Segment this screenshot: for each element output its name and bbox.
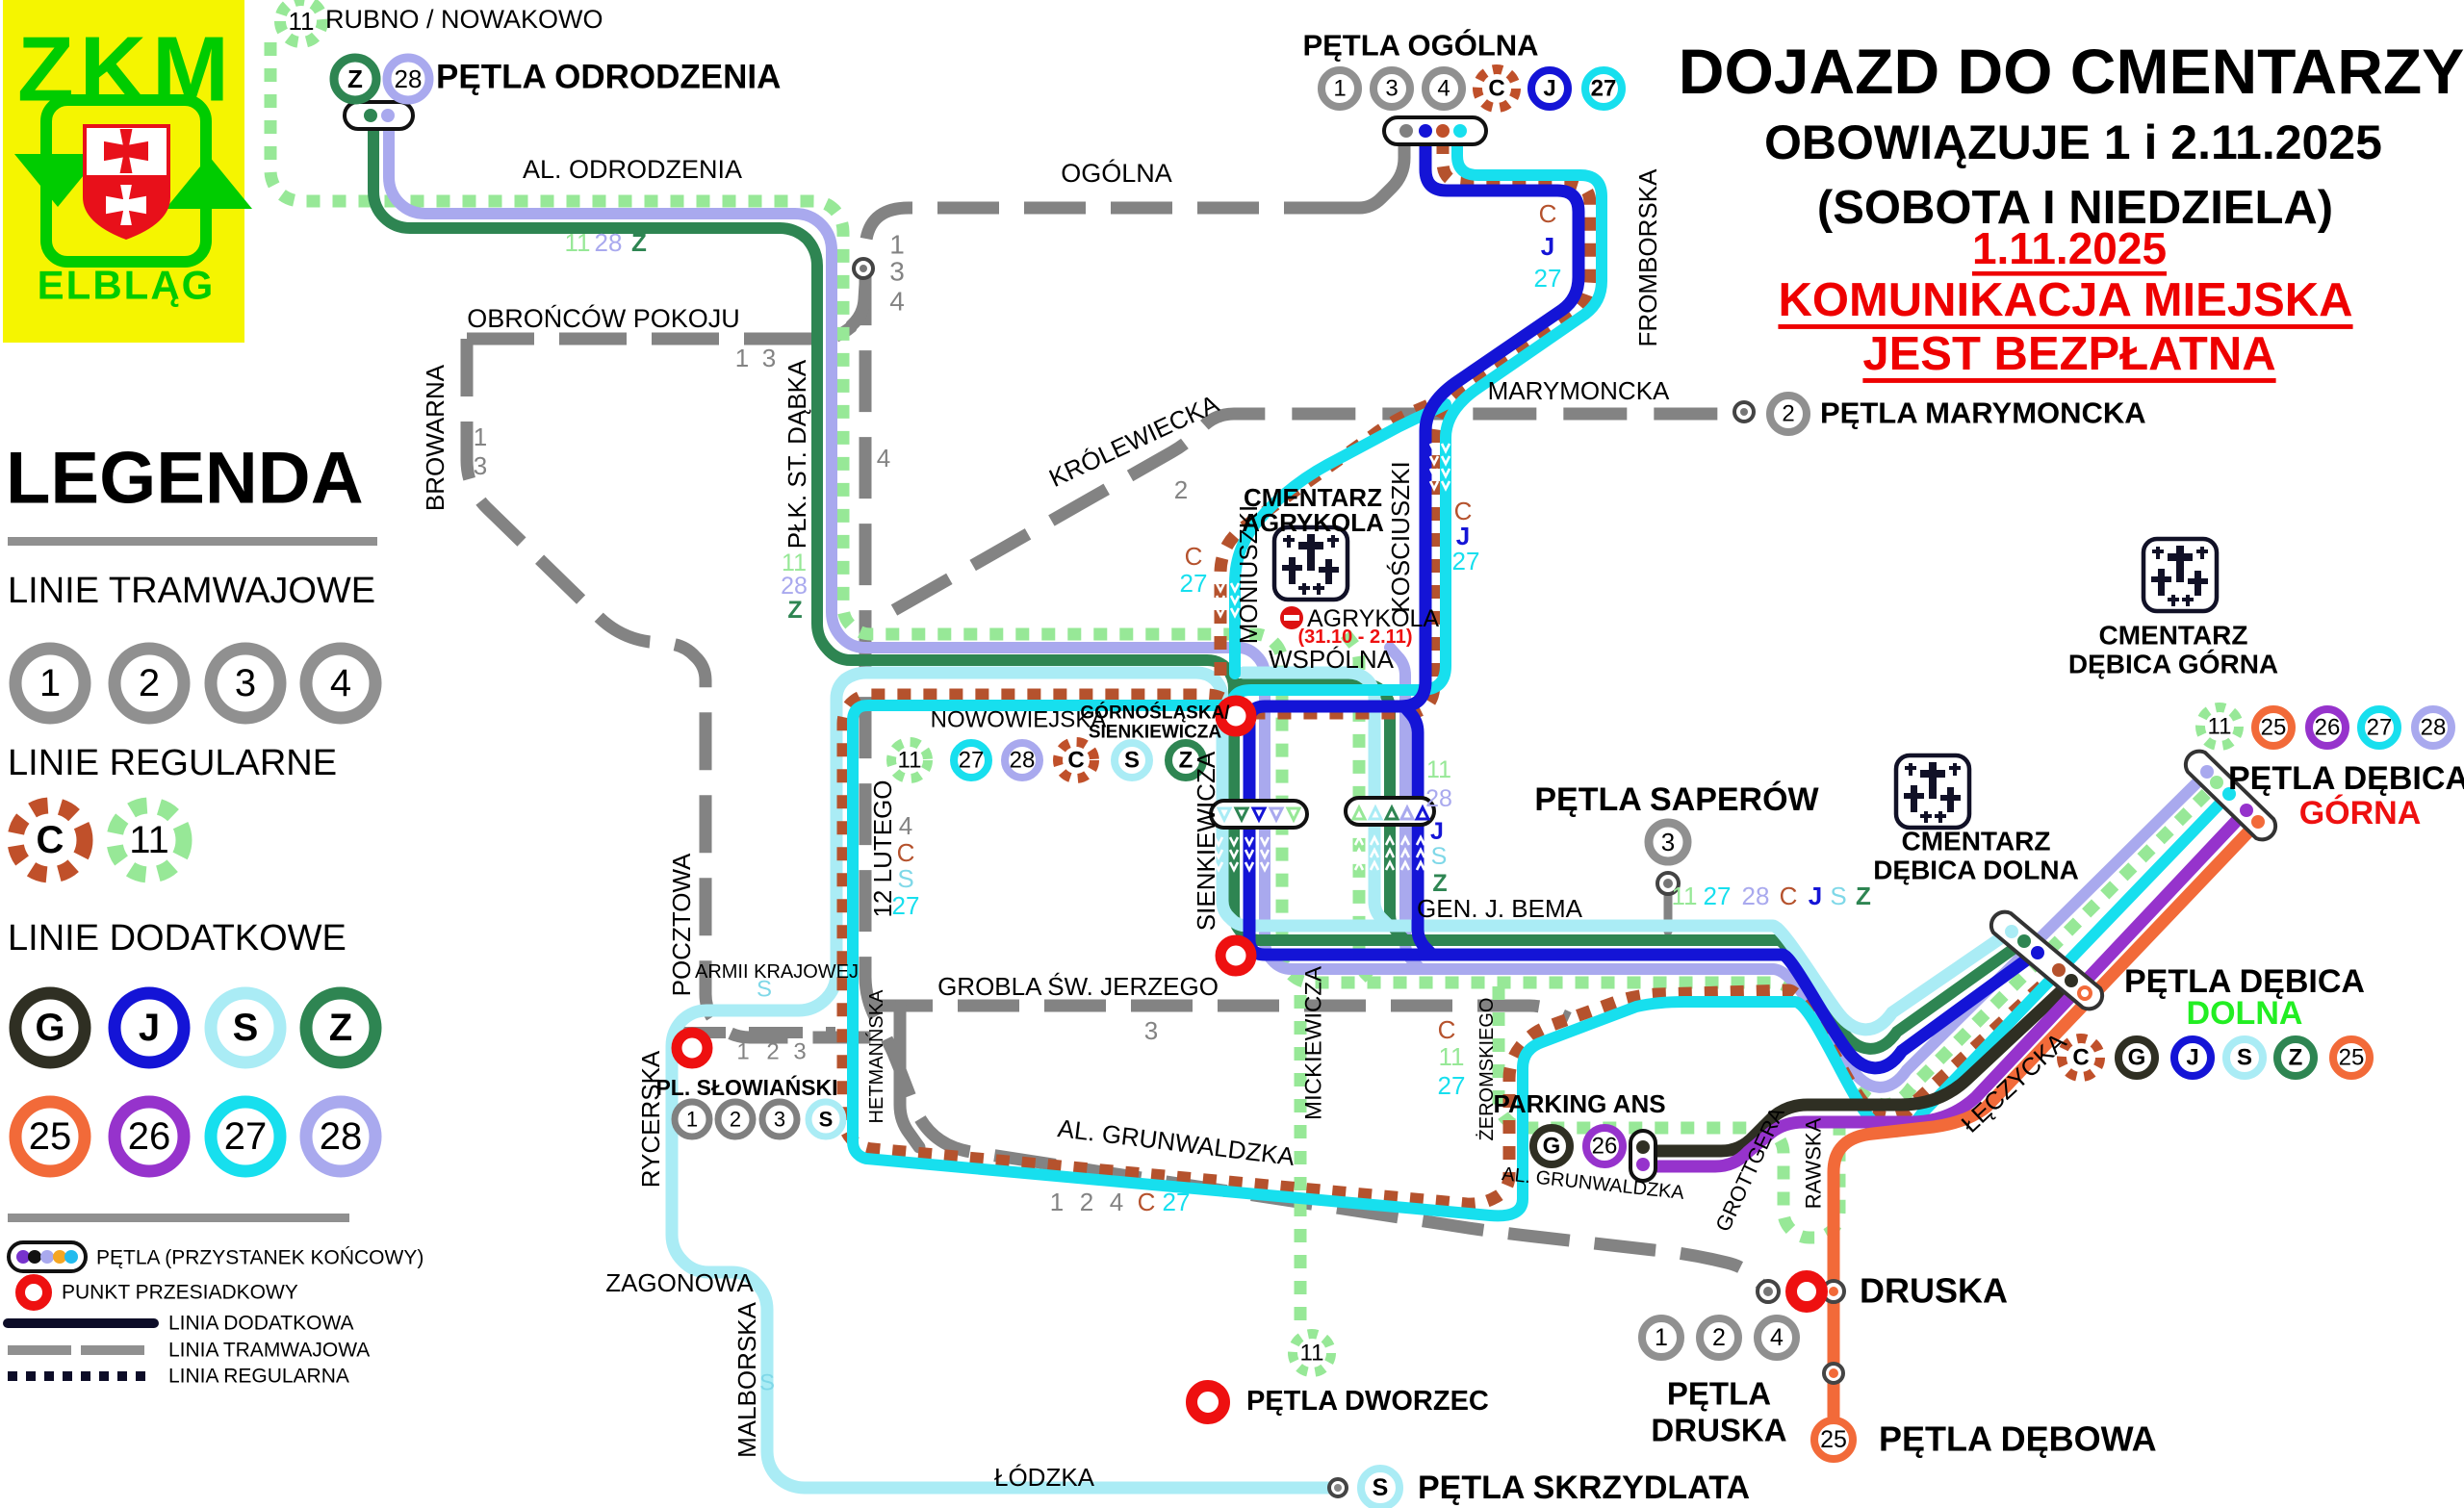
svg-text:PĘTLA SKRZYDLATA: PĘTLA SKRZYDLATA: [1418, 1470, 1750, 1506]
svg-text:PARKING ANS: PARKING ANS: [1493, 1089, 1665, 1118]
svg-text:C: C: [1067, 748, 1084, 774]
svg-text:C: C: [1185, 542, 1203, 571]
svg-text:1: 1: [1333, 76, 1346, 102]
svg-text:C: C: [1438, 1015, 1456, 1044]
svg-text:S: S: [1830, 882, 1846, 910]
svg-text:PĘTLA OGÓLNA: PĘTLA OGÓLNA: [1302, 28, 1538, 63]
svg-text:GROBLA ŚW. JERZEGO: GROBLA ŚW. JERZEGO: [937, 972, 1219, 1001]
svg-text:27: 27: [2367, 715, 2393, 741]
svg-text:2: 2: [1712, 1324, 1726, 1351]
svg-text:Z: Z: [347, 64, 363, 93]
svg-text:27: 27: [224, 1115, 268, 1158]
svg-text:ŻEROMSKIEGO: ŻEROMSKIEGO: [1476, 998, 1498, 1141]
svg-text:S: S: [759, 1370, 775, 1396]
svg-text:3: 3: [1385, 76, 1398, 102]
svg-text:27: 27: [1704, 882, 1732, 910]
svg-text:GÓRNA: GÓRNA: [2299, 795, 2422, 831]
svg-text:28: 28: [395, 64, 423, 93]
svg-text:CMENTARZ: CMENTARZ: [1901, 827, 2050, 856]
svg-text:11: 11: [1672, 882, 1698, 910]
svg-text:2: 2: [730, 1108, 741, 1132]
svg-text:DOLNA: DOLNA: [2187, 995, 2303, 1032]
svg-text:1: 1: [736, 1039, 749, 1065]
svg-text:KOMUNIKACJA MIEJSKA: KOMUNIKACJA MIEJSKA: [1778, 274, 2352, 326]
svg-text:26: 26: [1592, 1134, 1618, 1160]
svg-text:LINIE TRAMWAJOWE: LINIE TRAMWAJOWE: [8, 571, 375, 611]
svg-text:25: 25: [29, 1115, 72, 1158]
svg-text:2: 2: [766, 1039, 779, 1065]
svg-text:HETMANŃSKA: HETMANŃSKA: [865, 989, 887, 1124]
svg-text:G: G: [1543, 1134, 1561, 1160]
svg-text:RUBNO / NOWAKOWO: RUBNO / NOWAKOWO: [325, 5, 603, 34]
svg-text:JEST BEZPŁATNA: JEST BEZPŁATNA: [1862, 328, 2275, 380]
svg-text:C: C: [897, 838, 915, 867]
svg-text:28: 28: [320, 1115, 363, 1158]
svg-text:PĘTLA SAPERÓW: PĘTLA SAPERÓW: [1534, 781, 1819, 818]
svg-text:C: C: [37, 819, 64, 861]
svg-text:11: 11: [2208, 714, 2232, 740]
svg-text:S: S: [1373, 1474, 1389, 1501]
svg-text:OBROŃCÓW POKOJU: OBROŃCÓW POKOJU: [467, 303, 740, 333]
svg-text:PUNKT PRZESIADKOWY: PUNKT PRZESIADKOWY: [62, 1282, 298, 1304]
svg-text:11: 11: [1439, 1042, 1465, 1071]
svg-text:S: S: [1431, 843, 1448, 870]
svg-text:OBOWIĄZUJE 1 i 2.11.2025: OBOWIĄZUJE 1 i 2.11.2025: [1764, 115, 2382, 169]
svg-text:C: C: [1539, 199, 1557, 228]
svg-text:G: G: [2128, 1045, 2146, 1071]
svg-text:S: S: [819, 1108, 834, 1132]
svg-text:J: J: [139, 1007, 160, 1049]
svg-text:MARYMONCKA: MARYMONCKA: [1488, 376, 1670, 405]
svg-text:SIENKIEWICZA: SIENKIEWICZA: [1192, 751, 1220, 931]
svg-text:3: 3: [793, 1039, 806, 1065]
svg-text:S: S: [897, 864, 913, 893]
svg-text:RAWSKA: RAWSKA: [1802, 1117, 1826, 1209]
svg-text:AGRYKOLA: AGRYKOLA: [1242, 508, 1384, 537]
svg-text:3: 3: [889, 257, 905, 287]
svg-text:S: S: [2237, 1045, 2252, 1071]
svg-text:ELBLĄG: ELBLĄG: [38, 263, 216, 308]
svg-text:MALBORSKA: MALBORSKA: [732, 1301, 761, 1457]
svg-text:PĘTLA DĘBOWA: PĘTLA DĘBOWA: [1879, 1419, 2157, 1459]
svg-text:PĘTLA DWORZEC: PĘTLA DWORZEC: [1246, 1386, 1489, 1417]
svg-text:11: 11: [129, 819, 169, 861]
svg-text:WSPÓLNA: WSPÓLNA: [1269, 645, 1395, 674]
svg-text:4: 4: [1770, 1324, 1784, 1351]
svg-text:28: 28: [1425, 785, 1452, 812]
svg-text:11: 11: [1300, 1341, 1324, 1367]
svg-text:27: 27: [1591, 76, 1617, 102]
svg-text:28: 28: [781, 573, 808, 600]
svg-text:1: 1: [474, 422, 487, 451]
svg-text:DOJAZD DO CMENTARZY: DOJAZD DO CMENTARZY: [1679, 36, 2464, 107]
svg-text:DĘBICA GÓRNA: DĘBICA GÓRNA: [2068, 650, 2278, 679]
svg-text:27: 27: [1180, 569, 1208, 598]
svg-text:26: 26: [128, 1115, 171, 1158]
svg-text:PĘTLA ODRODZENIA: PĘTLA ODRODZENIA: [436, 59, 781, 96]
svg-text:LINIA TRAMWAJOWA: LINIA TRAMWAJOWA: [168, 1340, 370, 1362]
svg-text:2: 2: [139, 662, 160, 704]
svg-text:C: C: [1138, 1188, 1156, 1216]
svg-text:J: J: [1541, 232, 1554, 261]
svg-text:Z: Z: [631, 228, 647, 257]
svg-text:J: J: [1430, 818, 1444, 845]
svg-text:C: C: [1488, 76, 1504, 102]
svg-text:J: J: [1809, 882, 1822, 910]
svg-text:25: 25: [1820, 1426, 1847, 1453]
svg-text:RYCERSKA: RYCERSKA: [636, 1050, 665, 1188]
svg-text:3: 3: [1661, 828, 1675, 856]
svg-text:GÓRNOŚLĄSKA/: GÓRNOŚLĄSKA/: [1080, 703, 1230, 724]
svg-text:1: 1: [686, 1108, 698, 1132]
svg-text:Z: Z: [329, 1007, 352, 1049]
svg-text:3: 3: [235, 662, 256, 704]
svg-text:25: 25: [2261, 715, 2287, 741]
svg-text:26: 26: [2315, 715, 2341, 741]
svg-text:11: 11: [289, 7, 315, 36]
svg-text:1.11.2025: 1.11.2025: [1972, 223, 2167, 273]
svg-text:G: G: [35, 1007, 64, 1049]
svg-text:POCZTOWA: POCZTOWA: [667, 853, 696, 996]
svg-text:4: 4: [889, 287, 905, 317]
svg-text:3: 3: [1144, 1016, 1158, 1045]
svg-text:SIENKIEWICZA: SIENKIEWICZA: [1089, 723, 1222, 743]
svg-text:S: S: [233, 1007, 259, 1049]
svg-text:27: 27: [892, 891, 920, 920]
svg-text:1: 1: [735, 344, 749, 372]
svg-text:PĘTLA MARYMONCKA: PĘTLA MARYMONCKA: [1820, 396, 2146, 430]
svg-text:4: 4: [1437, 76, 1450, 102]
svg-text:J: J: [1543, 76, 1555, 102]
svg-text:4: 4: [330, 662, 351, 704]
svg-text:Z: Z: [1432, 870, 1447, 897]
svg-text:27: 27: [1163, 1188, 1191, 1216]
svg-text:Z: Z: [2289, 1045, 2303, 1071]
svg-text:4: 4: [877, 444, 890, 473]
svg-text:1: 1: [889, 230, 905, 260]
svg-text:PĘTLA: PĘTLA: [1667, 1376, 1771, 1412]
svg-text:1: 1: [1050, 1188, 1064, 1216]
svg-text:S: S: [757, 977, 772, 1003]
svg-text:27: 27: [1438, 1071, 1466, 1100]
svg-text:J: J: [2186, 1045, 2198, 1071]
svg-text:2: 2: [1080, 1188, 1093, 1216]
svg-text:ARMII KRAJOWEJ: ARMII KRAJOWEJ: [695, 961, 859, 983]
svg-text:Z: Z: [787, 597, 802, 624]
svg-text:FROMBORSKA: FROMBORSKA: [1633, 168, 1662, 347]
svg-text:11: 11: [1426, 756, 1451, 783]
svg-text:DRUSKA: DRUSKA: [1651, 1413, 1786, 1448]
svg-text:28: 28: [1742, 882, 1770, 910]
svg-text:1: 1: [1655, 1324, 1668, 1351]
svg-text:MICKIEWICZA: MICKIEWICZA: [1301, 966, 1327, 1120]
svg-text:4: 4: [1110, 1188, 1123, 1216]
svg-text:AL. ODRODZENIA: AL. ODRODZENIA: [523, 155, 742, 184]
svg-text:4: 4: [899, 811, 912, 840]
svg-text:27: 27: [1534, 264, 1562, 293]
svg-text:11: 11: [565, 228, 591, 257]
svg-text:C: C: [2072, 1045, 2089, 1071]
svg-text:PĘTLA (PRZYSTANEK KOŃCOWY): PĘTLA (PRZYSTANEK KOŃCOWY): [96, 1247, 423, 1269]
svg-text:BROWARNA: BROWARNA: [421, 364, 449, 511]
svg-text:LINIE DODATKOWE: LINIE DODATKOWE: [8, 918, 346, 958]
svg-text:3: 3: [774, 1108, 785, 1132]
svg-text:LINIE REGULARNE: LINIE REGULARNE: [8, 743, 337, 783]
svg-text:C: C: [1780, 882, 1798, 910]
svg-text:CMENTARZ: CMENTARZ: [2098, 621, 2247, 651]
svg-text:28: 28: [1010, 748, 1036, 774]
svg-text:27: 27: [959, 748, 985, 774]
svg-text:KOŚCIUSZKI: KOŚCIUSZKI: [1386, 461, 1415, 612]
svg-text:LINIA REGULARNA: LINIA REGULARNA: [168, 1366, 349, 1388]
svg-text:PĘTLA DĘBICA: PĘTLA DĘBICA: [2228, 760, 2464, 797]
svg-text:25: 25: [2339, 1045, 2365, 1071]
svg-text:3: 3: [762, 344, 776, 372]
svg-text:28: 28: [2421, 715, 2447, 741]
svg-text:OGÓLNA: OGÓLNA: [1061, 158, 1172, 188]
svg-text:DĘBICA DOLNA: DĘBICA DOLNA: [1873, 856, 2079, 885]
svg-text:Z: Z: [1856, 882, 1871, 910]
svg-text:GEN. J. BEMA: GEN. J. BEMA: [1417, 894, 1583, 923]
svg-text:2: 2: [1782, 401, 1794, 427]
svg-text:ŁÓDZKA: ŁÓDZKA: [994, 1463, 1095, 1492]
svg-text:3: 3: [474, 451, 487, 480]
svg-text:11: 11: [898, 748, 922, 774]
svg-text:DRUSKA: DRUSKA: [1860, 1271, 2008, 1311]
svg-text:28: 28: [595, 228, 623, 257]
svg-text:LINIA DODATKOWA: LINIA DODATKOWA: [168, 1313, 354, 1335]
svg-text:ZAGONOWA: ZAGONOWA: [605, 1268, 754, 1297]
svg-text:S: S: [1124, 748, 1140, 774]
svg-text:PL. SŁOWIAŃSKI: PL. SŁOWIAŃSKI: [655, 1074, 837, 1100]
svg-text:LEGENDA: LEGENDA: [6, 438, 364, 520]
svg-text:27: 27: [1452, 547, 1480, 575]
svg-text:2: 2: [1174, 475, 1188, 504]
svg-text:PŁK. ST. DĄBKA: PŁK. ST. DĄBKA: [783, 359, 811, 549]
svg-text:MONIUSZKI: MONIUSZKI: [1234, 505, 1263, 644]
svg-text:1: 1: [39, 662, 61, 704]
